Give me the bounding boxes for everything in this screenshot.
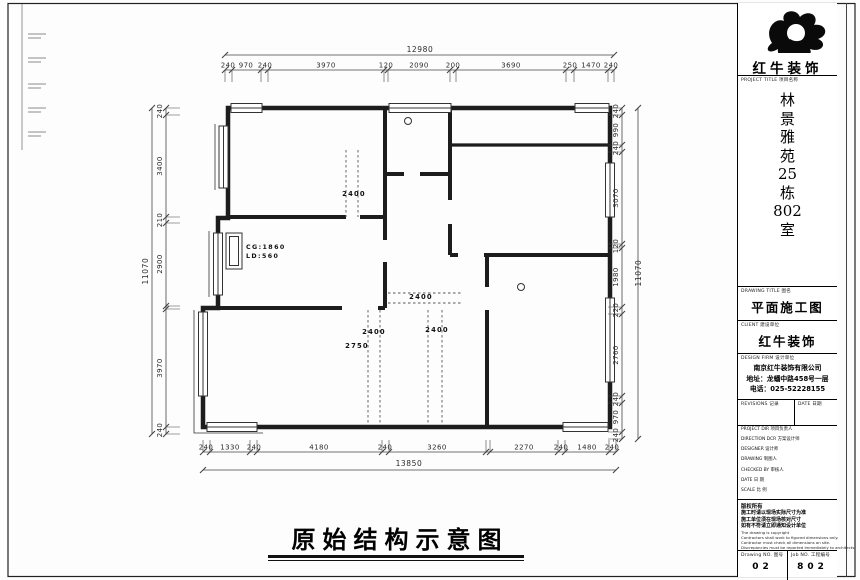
- dim-label: 1470: [581, 62, 600, 70]
- drawing-no-cell: Drawing NO. 图号 02: [738, 551, 788, 580]
- dim-label: 3070: [612, 188, 620, 207]
- dim-label: 3690: [501, 62, 520, 70]
- dim-label: 1980: [612, 267, 620, 286]
- number-row: Drawing NO. 图号 02 Job NO. 工程编号 802: [738, 551, 837, 580]
- design-firm-name: 南京红牛装饰有限公司: [738, 363, 837, 374]
- dim-label: 3260: [427, 444, 446, 452]
- project-name-char: 室: [738, 221, 837, 240]
- design-firm-address: 地址：龙蟠中路458号一层: [738, 374, 837, 385]
- dim-label: 240: [612, 428, 620, 443]
- niche-symbol: [226, 233, 242, 269]
- dim-overall-top: 12980: [407, 45, 434, 54]
- beam-height-label: 2400: [425, 326, 449, 334]
- job-no-value: 802: [788, 562, 837, 572]
- design-firm-label: DESIGN FIRM 设计单位: [738, 354, 837, 361]
- project-name-char: 栋: [738, 184, 837, 203]
- sheet-title-underline: [268, 555, 524, 558]
- project-name-char: 景: [738, 110, 837, 129]
- divider: [738, 499, 837, 500]
- dim-label: 240: [612, 141, 620, 156]
- window-ld-note: LD:560: [246, 253, 279, 260]
- dim-label: 240: [156, 104, 164, 119]
- title-block: 红牛装饰 PROJECT TITLE 项目名称 林 景 雅 苑 25 栋 802…: [737, 3, 837, 577]
- dim-overall-left: 11070: [141, 258, 150, 285]
- dim-label: 240: [604, 62, 619, 70]
- brand-name: 红牛装饰: [738, 57, 837, 77]
- dim-label: 3970: [156, 358, 164, 377]
- dim-label: 3970: [316, 62, 335, 70]
- notes-section: 版权所有 施工时请以现场实际尺寸为准 施工单位须在现场核对尺寸 如有不符请立即通…: [738, 501, 837, 550]
- drawing-no-label: Drawing NO. 图号: [738, 551, 787, 558]
- dim-label: 200: [446, 62, 461, 70]
- exterior-walls: [203, 108, 610, 427]
- revisions-label: REVISIONS 记录: [738, 400, 795, 411]
- project-name-char: 雅: [738, 128, 837, 147]
- title-block-gutter: [846, 3, 847, 577]
- note-cn: 施工时请以现场实际尺寸为准: [741, 510, 835, 517]
- drawing-title: 平面施工图: [738, 297, 837, 316]
- dim-label: 240: [258, 62, 273, 70]
- dim-label: 240: [612, 104, 620, 119]
- logo-section: 红牛装饰: [738, 9, 837, 71]
- scale-row: SCALE 比 例: [738, 487, 837, 497]
- client-name: 红牛装饰: [738, 331, 837, 350]
- job-no-cell: Job NO. 工程编号 802: [788, 551, 837, 580]
- project-name: 林 景 雅 苑 25 栋 802 室: [738, 91, 837, 239]
- dim-label: 240: [247, 444, 262, 452]
- sheet-border: [8, 4, 855, 577]
- dim-label: 220: [612, 303, 620, 318]
- date-row: DATE 日 期: [738, 477, 837, 487]
- project-title-label: PROJECT TITLE 项目名称: [738, 76, 837, 83]
- design-firm-phone: 电话：025-52228155: [738, 384, 837, 395]
- dim-label: 240: [612, 392, 620, 407]
- project-name-char: 林: [738, 91, 837, 110]
- project-name-char: 苑: [738, 147, 837, 166]
- frame-registration-marks: [22, 4, 46, 150]
- direction-dcr-row: DIRECTION DCR 方案设计师: [738, 436, 837, 446]
- floor-plan-canvas: 2400 2400 2400 2750 2400 CG:1860 LD:560 …: [0, 0, 860, 580]
- dim-label: 2090: [409, 62, 428, 70]
- dim-label: 240: [156, 423, 164, 438]
- bull-logo-icon: [738, 9, 837, 53]
- dim-label: 250: [563, 62, 578, 70]
- project-title-caption: PROJECT TITLE 项目名称: [738, 76, 837, 83]
- dim-label: 990: [612, 123, 620, 138]
- drawing-no-value: 02: [738, 562, 787, 572]
- revision-date-label: DATE 日期: [795, 400, 837, 411]
- dim-label: 240: [554, 444, 569, 452]
- dim-label: 240: [199, 444, 214, 452]
- project-name-char: 25: [738, 165, 837, 184]
- sheet-title-underline-thin: [268, 560, 524, 561]
- dim-label: 3400: [156, 156, 164, 175]
- note-cn: 如有不符请立即通知设计单位: [741, 523, 835, 530]
- dim-overall-bottom: 13850: [396, 459, 423, 468]
- revisions-section: REVISIONS 记录 DATE 日期: [738, 400, 837, 425]
- notes-header: 版权所有: [741, 502, 835, 510]
- project-dir-row: PROJECT DIR 项目负责人: [738, 426, 837, 436]
- dim-label: 970: [612, 410, 620, 425]
- drawing-title-section: DRAWING TITLE 图名 平面施工图: [738, 287, 837, 316]
- checked-by-row: CHECKED BY 审核人: [738, 467, 837, 477]
- beam-height-label: 2750: [345, 342, 369, 350]
- dim-label: 4180: [309, 444, 328, 452]
- cad-sheet: { "sheet": { "bottom_title": "原始结构示意图" }…: [0, 0, 860, 580]
- dim-label: 240: [378, 444, 393, 452]
- dim-label: 2900: [156, 254, 164, 273]
- dim-label: 1480: [577, 444, 596, 452]
- designer-row: DESIGNER 设计师: [738, 446, 837, 456]
- beam-height-label: 2400: [362, 328, 386, 336]
- dim-overall-right: 11070: [634, 260, 643, 287]
- client-section: CLIENT 建设单位 红牛装饰: [738, 321, 837, 350]
- drawing-title-label: DRAWING TITLE 图名: [738, 287, 837, 294]
- sheet-title: 原始结构示意图: [240, 520, 560, 555]
- dim-label: 1330: [220, 444, 239, 452]
- dim-label: 240: [605, 444, 620, 452]
- dim-label: 210: [156, 213, 164, 228]
- beam-height-label: 2400: [342, 190, 366, 198]
- dim-label: 120: [612, 239, 620, 254]
- dim-label: 2760: [612, 345, 620, 364]
- beam-height-label: 2400: [409, 293, 433, 301]
- windows: [194, 104, 615, 434]
- client-label: CLIENT 建设单位: [738, 321, 837, 328]
- drawing-row: DRAWING 制图人: [738, 456, 837, 466]
- job-no-label: Job NO. 工程编号: [788, 551, 837, 558]
- dim-label: 120: [379, 62, 394, 70]
- dim-label: 970: [239, 62, 254, 70]
- window-cg-note: CG:1860: [246, 244, 286, 251]
- interior-walls: [203, 108, 610, 427]
- info-rows: PROJECT DIR 项目负责人 DIRECTION DCR 方案设计师 DE…: [738, 426, 837, 497]
- revision-empty-row: [738, 411, 837, 425]
- dim-label: 240: [221, 62, 236, 70]
- project-name-char: 802: [738, 202, 837, 221]
- dim-label: 2270: [514, 444, 533, 452]
- design-firm-section: DESIGN FIRM 设计单位 南京红牛装饰有限公司 地址：龙蟠中路458号一…: [738, 354, 837, 395]
